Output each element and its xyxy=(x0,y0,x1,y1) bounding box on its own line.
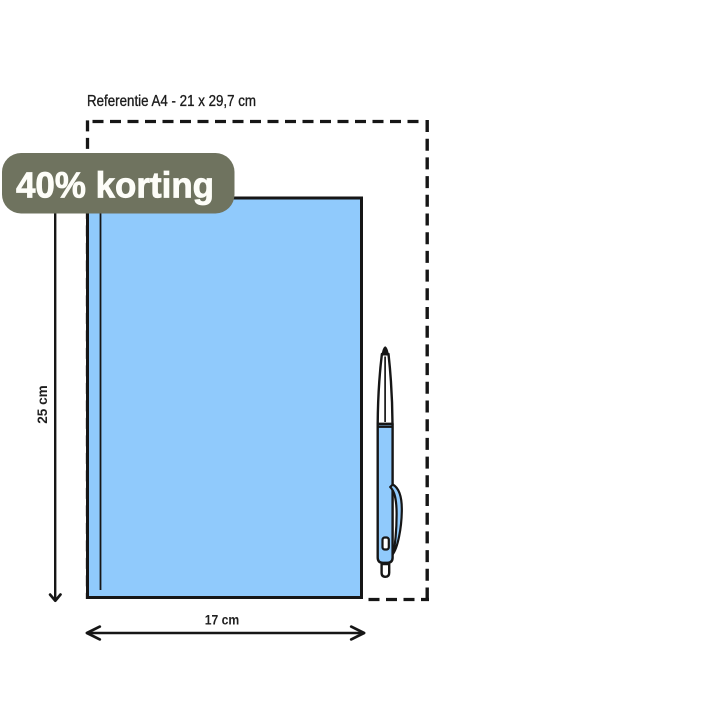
svg-text:25 cm: 25 cm xyxy=(35,385,50,424)
svg-text:17 cm: 17 cm xyxy=(205,613,240,628)
svg-text:Referentie A4 - 21 x 29,7 cm: Referentie A4 - 21 x 29,7 cm xyxy=(87,93,256,110)
svg-text:40% korting: 40% korting xyxy=(16,165,214,206)
